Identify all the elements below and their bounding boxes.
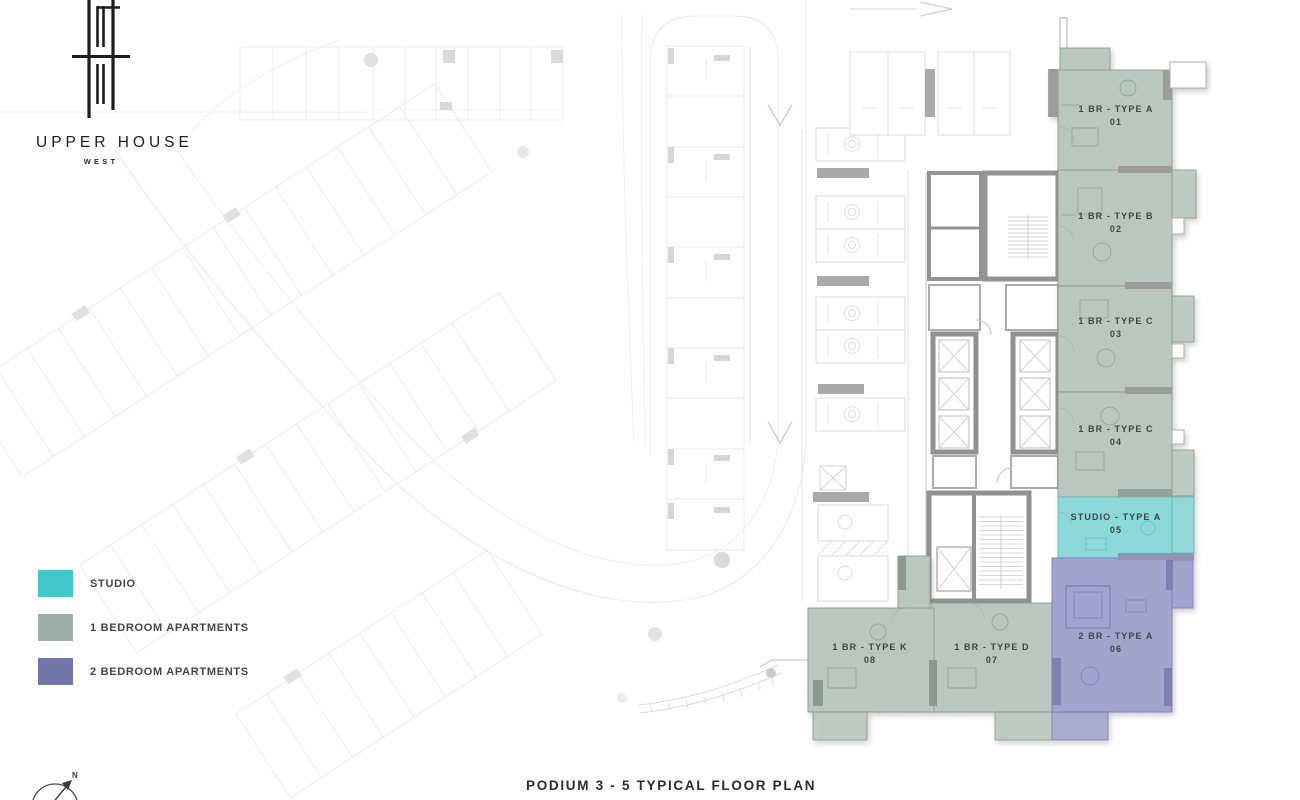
legend: STUDIO 1 BEDROOM APARTMENTS 2 BEDROOM AP… [38,570,249,702]
unit-06-label: 2 BR - TYPE A 06 [1079,630,1154,656]
podium-parking [802,128,905,601]
unit-08-balcony [813,712,867,740]
unit-01-label: 1 BR - TYPE A 01 [1079,103,1154,129]
studio-color-swatch [38,570,73,597]
unit-06-ext [1172,560,1193,608]
top-parking-stalls [850,2,1067,135]
unit-number: 08 [832,654,907,667]
building-core [908,170,1058,610]
unit-06-balcony [1052,712,1108,740]
two-bedroom-color-swatch [38,658,73,685]
unit-01-entry [1060,48,1110,71]
logo-subtitle: WEST [36,157,166,166]
elevator-cars [939,340,1050,448]
unit-name: STUDIO - TYPE A [1071,511,1162,524]
unit-08-label: 1 BR - TYPE K 08 [832,641,907,667]
unit-01-balcony [1170,62,1206,88]
plan-caption: PODIUM 3 - 5 TYPICAL FLOOR PLAN [526,778,776,793]
legend-item-studio: STUDIO [38,570,249,597]
unit-02-label: 1 BR - TYPE B 02 [1078,210,1153,236]
legend-item-one-bedroom: 1 BEDROOM APARTMENTS [38,614,249,641]
unit-number: 05 [1071,524,1162,537]
unit-number: 04 [1078,436,1153,449]
unit-number: 03 [1078,328,1153,341]
unit-04-label: 1 BR - TYPE C 04 [1078,423,1153,449]
one-bedroom-color-swatch [38,614,73,641]
unit-07-balcony [995,712,1052,740]
unit-name: 1 BR - TYPE C [1078,315,1153,328]
legend-label: 1 BEDROOM APARTMENTS [90,622,249,634]
unit-name: 2 BR - TYPE A [1079,630,1154,643]
walkway-arc [638,660,808,713]
unit-number: 02 [1078,223,1153,236]
unit-name: 1 BR - TYPE A [1079,103,1154,116]
unit-05-label: STUDIO - TYPE A 05 [1071,511,1162,537]
legend-label: STUDIO [90,578,136,590]
unit-number: 06 [1079,643,1154,656]
unit-number: 01 [1079,116,1154,129]
utility-rooms [929,173,981,279]
unit-03-balcony [1172,296,1194,342]
brand-logo: UPPER HOUSE WEST [36,0,166,166]
ramp-and-stall-column [115,0,806,602]
unit-07-label: 1 BR - TYPE D 07 [954,641,1029,667]
unit-03-label: 1 BR - TYPE C 03 [1078,315,1153,341]
logo-mark [36,0,166,120]
unit-name: 1 BR - TYPE C [1078,423,1153,436]
floor-plan-page: 1 BR - TYPE A 01 1 BR - TYPE B 02 1 BR -… [0,0,1300,800]
legend-label: 2 BEDROOM APARTMENTS [90,666,249,678]
compass-north-label: N [72,771,78,780]
unit-name: 1 BR - TYPE D [954,641,1029,654]
logo-title: UPPER HOUSE [36,134,166,152]
unit-name: 1 BR - TYPE K [832,641,907,654]
unit-name: 1 BR - TYPE B [1078,210,1153,223]
white-balconies [1170,62,1206,444]
unit-number: 07 [954,654,1029,667]
north-compass-icon [28,770,98,800]
unit-02-balcony [1172,170,1196,218]
unit-05-balcony [1172,497,1194,553]
column-dots [364,53,776,703]
stair-shaft-top [985,173,1058,279]
legend-item-two-bedroom: 2 BEDROOM APARTMENTS [38,658,249,685]
unit-04-balcony [1172,450,1194,496]
